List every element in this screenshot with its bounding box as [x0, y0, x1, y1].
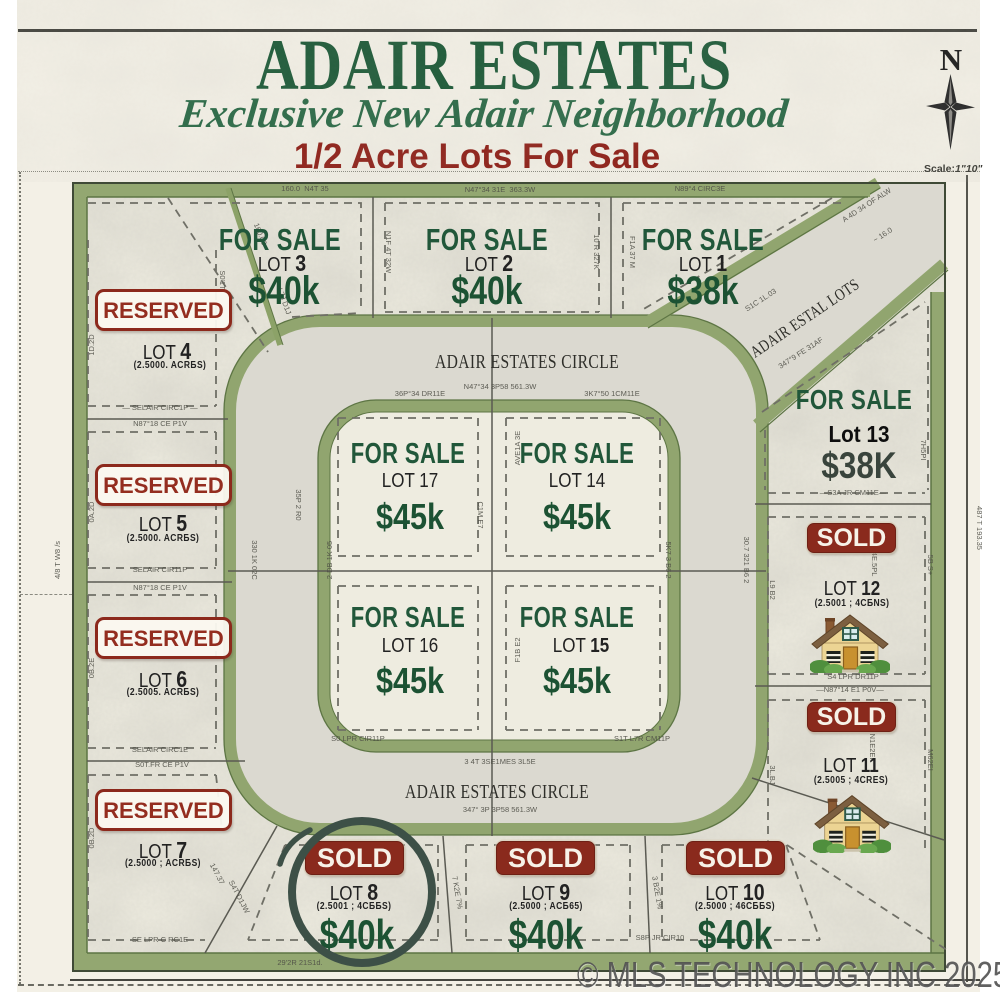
- svg-text:—S3A JR CM11E—: —S3A JR CM11E—: [820, 488, 887, 497]
- svg-text:3L.BJ: 3L.BJ: [768, 765, 777, 784]
- svg-text:347° 3P 3P58 561.3W: 347° 3P 3P58 561.3W: [463, 805, 538, 814]
- svg-text:—N87°14 E1 P0V—: —N87°14 E1 P0V—: [816, 685, 884, 694]
- svg-text:— SELAIR CIRC1P —: — SELAIR CIRC1P —: [122, 403, 198, 412]
- svg-text:30.7 321 B6 2: 30.7 321 B6 2: [742, 537, 751, 584]
- svg-text:N87°18 CE P1V: N87°18 CE P1V: [133, 419, 187, 428]
- svg-text:36P°34 DR11E: 36P°34 DR11E: [395, 389, 445, 398]
- svg-text:C1M E7: C1M E7: [476, 501, 485, 528]
- svg-text:35P 2 R0: 35P 2 R0: [294, 489, 303, 520]
- svg-text:N1F 4T 32W: N1F 4T 32W: [384, 231, 393, 274]
- svg-text:S8P JR CIR10: S8P JR CIR10: [636, 933, 685, 942]
- svg-text:S0 LPR CIR11P: S0 LPR CIR11P: [331, 734, 385, 743]
- svg-text:0A.2D: 0A.2D: [87, 501, 96, 522]
- svg-text:L9 B2: L9 B2: [768, 580, 777, 600]
- svg-text:SELAIR CIR11P: SELAIR CIR11P: [133, 565, 187, 574]
- svg-text:2 DB 1K 05: 2 DB 1K 05: [325, 541, 334, 579]
- svg-text:7H5PІ: 7H5PІ: [919, 440, 928, 461]
- svg-text:330 1K 02C: 330 1K 02C: [250, 540, 259, 580]
- svg-text:ADAIR ESTATES CIRCLE: ADAIR ESTATES CIRCLE: [405, 780, 589, 802]
- svg-text:1D.2D: 1D.2D: [87, 334, 96, 356]
- svg-text:N89°4 CIRC3E: N89°4 CIRC3E: [675, 184, 726, 193]
- svg-text:ADAIR ESTATES CIRCLE: ADAIR ESTATES CIRCLE: [435, 350, 619, 372]
- svg-text:10 R 327K: 10 R 327K: [592, 234, 601, 269]
- svg-text:4/8 T W8 /s: 4/8 T W8 /s: [53, 541, 62, 579]
- svg-text:5K7 3 B6 2: 5K7 3 B6 2: [664, 541, 673, 578]
- svg-text:487 T 193.35: 487 T 193.35: [975, 506, 984, 550]
- svg-text:SE LPR C RC1E: SE LPR C RC1E: [132, 935, 188, 944]
- svg-text:S0T.FR CE P1V: S0T.FR CE P1V: [135, 760, 189, 769]
- svg-text:N47°34 3P58 561.3W: N47°34 3P58 561.3W: [464, 382, 538, 391]
- svg-text:160.0 N4T 35: 160.0 N4T 35: [281, 184, 328, 193]
- svg-text:F1B E2: F1B E2: [513, 637, 522, 662]
- svg-text:N47°34 31E 363.3W: N47°34 31E 363.3W: [465, 185, 536, 194]
- svg-text:0B.2D: 0B.2D: [87, 827, 96, 848]
- svg-text:0B.2E: 0B.2E: [87, 658, 96, 678]
- svg-text:N87°18 CE P1V: N87°18 CE P1V: [133, 583, 187, 592]
- svg-text:S1T L7R CM11P: S1T L7R CM11P: [614, 734, 670, 743]
- svg-text:3 4T 3SE1MES 3L5E: 3 4T 3SE1MES 3L5E: [464, 757, 535, 766]
- svg-text:5B S+: 5B S+: [926, 555, 935, 576]
- svg-text:F1A 37 M: F1A 37 M: [628, 236, 637, 268]
- svg-text:SELAIR CIRC1E: SELAIR CIRC1E: [132, 745, 188, 754]
- svg-text:S0'1T: S0'1T: [218, 270, 227, 290]
- svg-text:M62EІ: M62EІ: [926, 749, 935, 771]
- svg-text:S4 LPR DR11P: S4 LPR DR11P: [827, 672, 879, 681]
- svg-text:3K7°50 1CM11E: 3K7°50 1CM11E: [584, 389, 639, 398]
